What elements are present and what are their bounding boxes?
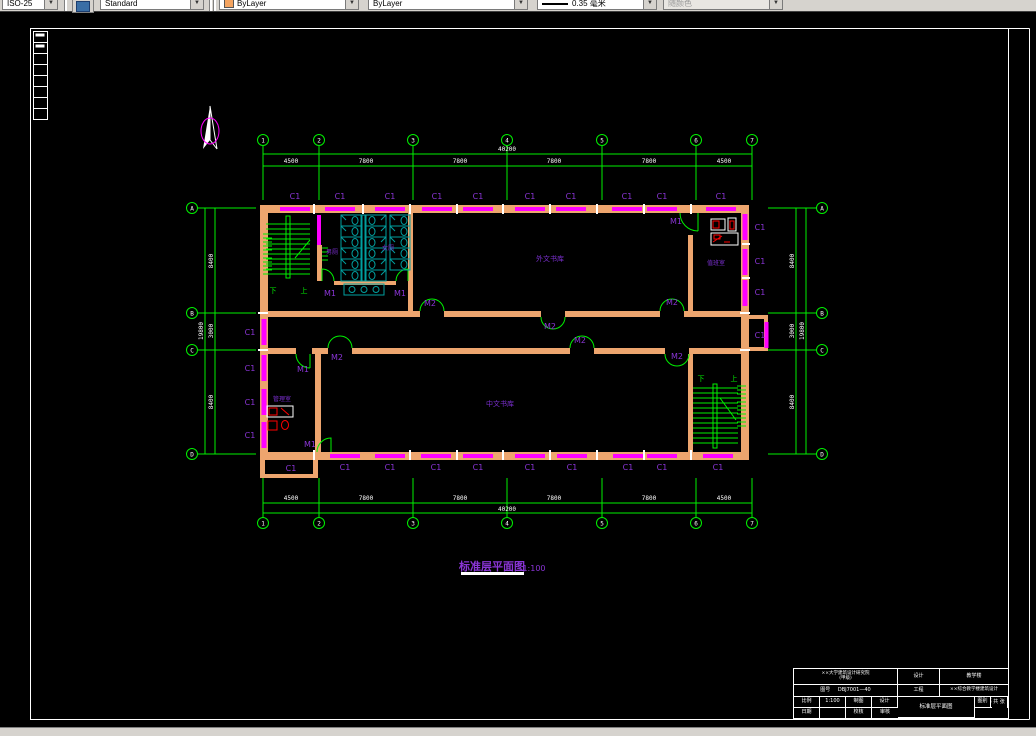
- svg-text:C1: C1: [432, 192, 443, 201]
- svg-text:C1: C1: [525, 463, 536, 472]
- svg-text:管理室: 管理室: [273, 395, 291, 403]
- svg-text:C1: C1: [385, 192, 396, 201]
- svg-text:D: D: [190, 452, 194, 459]
- svg-text:女厕: 女厕: [382, 244, 394, 252]
- svg-text:7: 7: [750, 138, 754, 145]
- svg-text:上: 上: [731, 374, 738, 383]
- stair-bottom-right: [693, 384, 738, 448]
- jamb-marks: [258, 204, 750, 460]
- titleblock-sheets-total: 共 张: [992, 697, 1008, 708]
- svg-text:下: 下: [270, 287, 277, 295]
- svg-text:C1: C1: [245, 364, 256, 373]
- svg-text:C1: C1: [713, 463, 724, 472]
- svg-text:C1: C1: [755, 331, 766, 340]
- svg-text:C1: C1: [245, 328, 256, 337]
- plan-doors: [296, 213, 698, 452]
- svg-text:C1: C1: [755, 257, 766, 266]
- svg-text:19800: 19800: [198, 322, 205, 340]
- svg-text:3: 3: [411, 521, 415, 528]
- svg-text:40200: 40200: [498, 146, 516, 153]
- plan-walls: [260, 205, 768, 478]
- titleblock-scale-label: 比例: [794, 697, 820, 708]
- titleblock-category-label: 图别: [975, 697, 991, 708]
- svg-text:3000: 3000: [208, 323, 215, 338]
- svg-text:C1: C1: [245, 431, 256, 440]
- titleblock-scale-value: 1:100: [820, 697, 846, 708]
- svg-text:5: 5: [600, 521, 604, 528]
- svg-text:7800: 7800: [642, 158, 657, 165]
- svg-text:C1: C1: [473, 463, 484, 472]
- svg-text:4: 4: [505, 138, 509, 145]
- svg-text:男厕: 男厕: [326, 249, 338, 256]
- titleblock-audit-label: 审核: [872, 708, 898, 719]
- svg-text:8400: 8400: [789, 253, 796, 268]
- window-labels: C1C1 C1C1 C1C1 C1C1 C1C1 C1 C1C1 C1C1 C1…: [245, 192, 766, 473]
- svg-text:C1: C1: [431, 463, 442, 472]
- sheet-frame: [31, 29, 1030, 720]
- svg-text:7800: 7800: [547, 158, 562, 165]
- svg-text:C: C: [190, 348, 194, 355]
- radiators: [263, 234, 746, 426]
- svg-text:D: D: [820, 452, 824, 459]
- svg-text:A: A: [190, 206, 194, 213]
- grid-dimensions: 1 2 3 4 5 6 7 40200 4500 7800 7800 7800 …: [187, 135, 828, 529]
- svg-text:C1: C1: [755, 288, 766, 297]
- svg-text:C1: C1: [622, 192, 633, 201]
- svg-text:M1: M1: [304, 440, 316, 449]
- titleblock-sheet-no: 第 张: [1008, 697, 1009, 708]
- svg-text:6: 6: [694, 521, 698, 528]
- svg-text:7800: 7800: [453, 495, 468, 502]
- svg-text:C1: C1: [473, 192, 484, 201]
- svg-text:8400: 8400: [208, 394, 215, 409]
- svg-text:4500: 4500: [284, 495, 299, 502]
- svg-text:C1: C1: [566, 192, 577, 201]
- svg-text:C1: C1: [755, 223, 766, 232]
- svg-text:C1: C1: [286, 464, 297, 473]
- svg-text:3: 3: [411, 138, 415, 145]
- svg-text:C1: C1: [385, 463, 396, 472]
- svg-text:4500: 4500: [717, 158, 732, 165]
- svg-text:B: B: [190, 311, 194, 318]
- svg-text:7800: 7800: [359, 158, 374, 165]
- svg-text:M1: M1: [297, 365, 309, 374]
- svg-text:7: 7: [750, 521, 754, 528]
- titleblock-design-value: 教学楼: [940, 669, 1008, 685]
- drawing-canvas[interactable]: 1 2 3 4 5 6 7 40200 4500 7800 7800 7800 …: [0, 0, 1036, 736]
- svg-text:1:100: 1:100: [522, 564, 545, 573]
- svg-text:C1: C1: [340, 463, 351, 472]
- svg-text:上: 上: [301, 286, 308, 295]
- svg-text:C: C: [820, 348, 824, 355]
- desk-bottom-left: [267, 406, 293, 430]
- svg-text:C1: C1: [245, 398, 256, 407]
- svg-text:M2: M2: [671, 352, 683, 361]
- titleblock-design2-label: 设计: [872, 697, 898, 708]
- svg-text:8400: 8400: [208, 253, 215, 268]
- titleblock-check-label: 校核: [846, 708, 872, 719]
- svg-text:7800: 7800: [453, 158, 468, 165]
- svg-text:7800: 7800: [359, 495, 374, 502]
- titleblock-project-value: ××综合教学楼建筑设计: [940, 685, 1008, 697]
- svg-text:19800: 19800: [799, 322, 806, 340]
- titleblock-drawing-name: 标准层平面图: [898, 697, 975, 718]
- svg-text:C1: C1: [525, 192, 536, 201]
- svg-text:4500: 4500: [284, 158, 299, 165]
- svg-text:5: 5: [600, 138, 604, 145]
- svg-text:4500: 4500: [717, 495, 732, 502]
- titleblock-date-label: 日期: [794, 708, 820, 719]
- svg-text:7800: 7800: [547, 495, 562, 502]
- svg-text:中文书库: 中文书库: [486, 399, 514, 408]
- svg-text:M1: M1: [324, 289, 336, 298]
- svg-text:C1: C1: [567, 463, 578, 472]
- titleblock-design-label: 设计: [898, 669, 940, 685]
- wash-basins: [344, 284, 384, 295]
- svg-text:M2: M2: [666, 298, 678, 307]
- svg-text:A: A: [820, 206, 824, 213]
- svg-text:C1: C1: [657, 463, 668, 472]
- room-labels: 外文书库 中文书库 男厕 女厕 值班室 管理室 下 上 下 上: [270, 244, 738, 408]
- svg-text:M1: M1: [394, 289, 406, 298]
- svg-text:C1: C1: [335, 192, 346, 201]
- svg-text:7800: 7800: [642, 495, 657, 502]
- status-bar: [0, 727, 1036, 736]
- svg-text:1: 1: [261, 521, 265, 528]
- svg-text:1: 1: [261, 138, 265, 145]
- svg-text:C1: C1: [623, 463, 634, 472]
- titleblock-draft-label: 制图: [846, 697, 872, 708]
- north-arrow-icon: [201, 106, 219, 149]
- svg-text:下: 下: [698, 375, 705, 383]
- svg-text:外文书库: 外文书库: [536, 254, 564, 263]
- svg-text:M2: M2: [574, 336, 586, 345]
- desk-top-right: [711, 218, 738, 245]
- svg-text:2: 2: [317, 138, 321, 145]
- revision-strip: [34, 32, 48, 120]
- svg-text:标准层平面图: 标准层平面图: [458, 559, 525, 573]
- svg-text:8400: 8400: [789, 394, 796, 409]
- title-block: ××大学建筑设计研究院(甲级) 设计 教学楼 图号 DBJ7001—40 工程 …: [793, 668, 1009, 719]
- svg-text:C1: C1: [290, 192, 301, 201]
- titleblock-project-label: 工程: [898, 685, 940, 697]
- svg-text:M2: M2: [331, 353, 343, 362]
- svg-text:B: B: [820, 311, 824, 318]
- titleblock-org: ××大学建筑设计研究院(甲级): [794, 669, 898, 685]
- svg-text:值班室: 值班室: [707, 259, 725, 267]
- titleblock-blank: [820, 708, 846, 719]
- door-labels: M1 M1 M1 M1 M1 M2 M2 M2 M2 M2 M2: [297, 217, 683, 449]
- svg-text:C1: C1: [716, 192, 727, 201]
- autocad-window: ISO-25 ▼ Standard ▼ ByLayer ▼ ByLayer ▼ …: [0, 0, 1036, 736]
- stair-top-left: [266, 216, 310, 278]
- svg-text:3000: 3000: [789, 323, 796, 338]
- svg-text:M2: M2: [544, 322, 556, 331]
- svg-text:M1: M1: [670, 217, 682, 226]
- svg-text:40200: 40200: [498, 506, 516, 513]
- svg-text:6: 6: [694, 138, 698, 145]
- svg-text:M2: M2: [424, 299, 436, 308]
- svg-text:C1: C1: [657, 192, 668, 201]
- drawing-title: 标准层平面图 1:100: [458, 559, 546, 575]
- svg-text:4: 4: [505, 521, 509, 528]
- titleblock-number: 图号 DBJ7001—40: [794, 685, 898, 697]
- svg-text:2: 2: [317, 521, 321, 528]
